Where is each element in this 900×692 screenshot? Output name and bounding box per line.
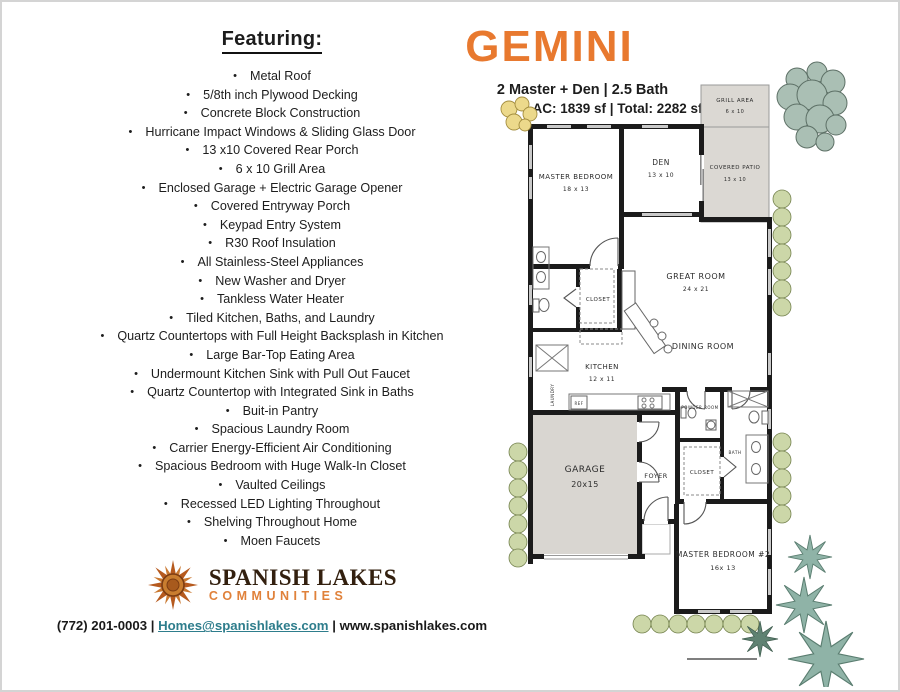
feature-item: •Quartz Countertop with Integrated Sink … xyxy=(32,383,512,402)
contact-line: (772) 201-0003 | Homes@spanishlakes.com … xyxy=(32,618,512,633)
bullet-icon: • xyxy=(134,365,138,384)
feature-text: All Stainless-Steel Appliances xyxy=(197,255,363,269)
flyer-page: Featuring: •Metal Roof•5/8th inch Plywoo… xyxy=(0,0,900,692)
label-master-bedroom2: MASTER BEDROOM #2 xyxy=(676,550,770,559)
feature-item: •R30 Roof Insulation xyxy=(32,234,512,253)
label-laundry: LAUNDRY xyxy=(550,384,555,407)
landscaping xyxy=(501,62,864,687)
feature-text: Vaulted Ceilings xyxy=(235,478,325,492)
feature-item: •New Washer and Dryer xyxy=(32,272,512,291)
feature-text: Carrier Energy-Efficient Air Conditionin… xyxy=(169,441,391,455)
bullet-icon: • xyxy=(208,234,212,253)
logo-name: SPANISH LAKES xyxy=(209,567,397,589)
feature-item: •Metal Roof xyxy=(32,67,512,86)
dim-grill-area: 6 x 10 xyxy=(726,109,745,115)
bullet-icon: • xyxy=(128,123,132,142)
feature-item: •Large Bar-Top Eating Area xyxy=(32,346,512,365)
bullet-icon: • xyxy=(169,309,173,328)
feature-item: •Quartz Countertops with Full Height Bac… xyxy=(32,327,512,346)
dim-kitchen: 12 x 11 xyxy=(589,376,615,383)
feature-text: New Washer and Dryer xyxy=(215,274,345,288)
feature-item: •Enclosed Garage + Electric Garage Opene… xyxy=(32,179,512,198)
feature-text: Buit-in Pantry xyxy=(243,404,319,418)
logo-subname: COMMUNITIES xyxy=(209,589,397,603)
phone-number: (772) 201-0003 xyxy=(57,618,147,633)
feature-text: 6 x 10 Grill Area xyxy=(236,162,326,176)
label-powder-room: POWDER ROOM xyxy=(681,405,718,410)
feature-text: Spacious Laundry Room xyxy=(211,422,349,436)
email-link[interactable]: Homes@spanishlakes.com xyxy=(158,618,328,633)
bullet-icon: • xyxy=(226,402,230,421)
feature-item: •Spacious Laundry Room xyxy=(32,420,512,439)
feature-item: •Tankless Water Heater xyxy=(32,290,512,309)
feature-text: Shelving Throughout Home xyxy=(204,515,357,529)
feature-text: Undermount Kitchen Sink with Pull Out Fa… xyxy=(151,367,410,381)
feature-item: •Concrete Block Construction xyxy=(32,104,512,123)
feature-item: •All Stainless-Steel Appliances xyxy=(32,253,512,272)
feature-text: Tankless Water Heater xyxy=(217,292,344,306)
feature-item: •Undermount Kitchen Sink with Pull Out F… xyxy=(32,365,512,384)
feature-item: •Covered Entryway Porch xyxy=(32,197,512,216)
bullet-icon: • xyxy=(203,216,207,235)
website-url: www.spanishlakes.com xyxy=(340,618,488,633)
feature-item: •Carrier Energy-Efficient Air Conditioni… xyxy=(32,439,512,458)
separator: | xyxy=(332,618,336,633)
feature-text: Metal Roof xyxy=(250,69,311,83)
separator: | xyxy=(151,618,155,633)
feature-text: Moen Faucets xyxy=(241,534,321,548)
bullet-icon: • xyxy=(198,272,202,291)
label-bath: BATH xyxy=(728,450,741,455)
bullet-icon: • xyxy=(164,495,168,514)
bullet-icon: • xyxy=(184,104,188,123)
feature-item: •Recessed LED Lighting Throughout xyxy=(32,495,512,514)
feature-item: •5/8th inch Plywood Decking xyxy=(32,86,512,105)
label-master-bedroom: MASTER BEDROOM xyxy=(539,173,614,181)
bullet-icon: • xyxy=(200,290,204,309)
bullet-icon: • xyxy=(138,457,142,476)
label-covered-patio: COVERED PATIO xyxy=(710,165,761,171)
dim-garage: 20x15 xyxy=(571,480,599,489)
feature-text: 5/8th inch Plywood Decking xyxy=(203,88,358,102)
feature-item: •Vaulted Ceilings xyxy=(32,476,512,495)
feature-item: •Tiled Kitchen, Baths, and Laundry xyxy=(32,309,512,328)
feature-item: •Moen Faucets xyxy=(32,532,512,551)
label-den: DEN xyxy=(652,158,670,167)
label-grill-area: GRILL AREA xyxy=(716,98,753,104)
bullet-icon: • xyxy=(100,327,104,346)
label-dining-room: DINING ROOM xyxy=(672,342,734,351)
feature-item: •Buit-in Pantry xyxy=(32,402,512,421)
feature-text: Enclosed Garage + Electric Garage Opener xyxy=(158,181,402,195)
bullet-icon: • xyxy=(219,476,223,495)
bullet-icon: • xyxy=(195,420,199,439)
bullet-icon: • xyxy=(187,513,191,532)
label-ref: REF xyxy=(574,401,583,406)
feature-item: •13 x10 Covered Rear Porch xyxy=(32,141,512,160)
feature-item: •Spacious Bedroom with Huge Walk-In Clos… xyxy=(32,457,512,476)
label-great-room: GREAT ROOM xyxy=(666,272,725,281)
feature-text: Hurricane Impact Windows & Sliding Glass… xyxy=(145,125,415,139)
bullet-icon: • xyxy=(152,439,156,458)
sun-logo-icon xyxy=(147,559,199,611)
bullet-icon: • xyxy=(186,86,190,105)
label-garage: GARAGE xyxy=(565,465,606,475)
feature-item: •Hurricane Impact Windows & Sliding Glas… xyxy=(32,123,512,142)
dim-master-bedroom2: 16x 13 xyxy=(710,564,735,572)
feature-text: Quartz Countertop with Integrated Sink i… xyxy=(147,385,414,399)
dim-great-room: 24 x 21 xyxy=(683,286,709,293)
feature-item: •6 x 10 Grill Area xyxy=(32,160,512,179)
bullet-icon: • xyxy=(142,179,146,198)
feature-text: Covered Entryway Porch xyxy=(211,199,350,213)
feature-text: Quartz Countertops with Full Height Back… xyxy=(117,329,443,343)
feature-text: R30 Roof Insulation xyxy=(225,236,336,250)
bullet-icon: • xyxy=(186,141,190,160)
feature-item: •Keypad Entry System xyxy=(32,216,512,235)
feature-text: Large Bar-Top Eating Area xyxy=(206,348,354,362)
bullet-icon: • xyxy=(189,346,193,365)
floor-plan: MASTER BEDROOM 18 x 13 DEN 13 x 10 COVER… xyxy=(492,57,892,687)
feature-item: •Shelving Throughout Home xyxy=(32,513,512,532)
dim-den: 13 x 10 xyxy=(648,172,674,179)
feature-text: Keypad Entry System xyxy=(220,218,341,232)
label-foyer: FOYER xyxy=(644,472,668,480)
bullet-icon: • xyxy=(181,253,185,272)
bullet-icon: • xyxy=(130,383,134,402)
feature-text: Spacious Bedroom with Huge Walk-In Close… xyxy=(155,459,406,473)
bullet-icon: • xyxy=(233,67,237,86)
company-logo: SPANISH LAKES COMMUNITIES xyxy=(32,559,512,611)
feature-text: Tiled Kitchen, Baths, and Laundry xyxy=(186,311,375,325)
feature-text: Concrete Block Construction xyxy=(201,106,361,120)
bullet-icon: • xyxy=(219,160,223,179)
feature-text: Recessed LED Lighting Throughout xyxy=(181,497,380,511)
bullet-icon: • xyxy=(194,197,198,216)
features-list: •Metal Roof•5/8th inch Plywood Decking•C… xyxy=(32,67,512,550)
bullet-icon: • xyxy=(224,532,228,551)
features-title: Featuring: xyxy=(222,28,323,54)
label-closet-mb2: CLOSET xyxy=(690,470,715,476)
label-closet-master: CLOSET xyxy=(586,297,611,303)
features-panel: Featuring: •Metal Roof•5/8th inch Plywoo… xyxy=(32,28,512,633)
outdoor-gray-areas xyxy=(533,85,769,554)
label-kitchen: KITCHEN xyxy=(585,363,619,371)
feature-text: 13 x10 Covered Rear Porch xyxy=(202,143,358,157)
tree xyxy=(777,62,847,151)
dim-covered-patio: 13 x 10 xyxy=(724,177,746,183)
dim-master-bedroom: 18 x 13 xyxy=(563,186,589,193)
